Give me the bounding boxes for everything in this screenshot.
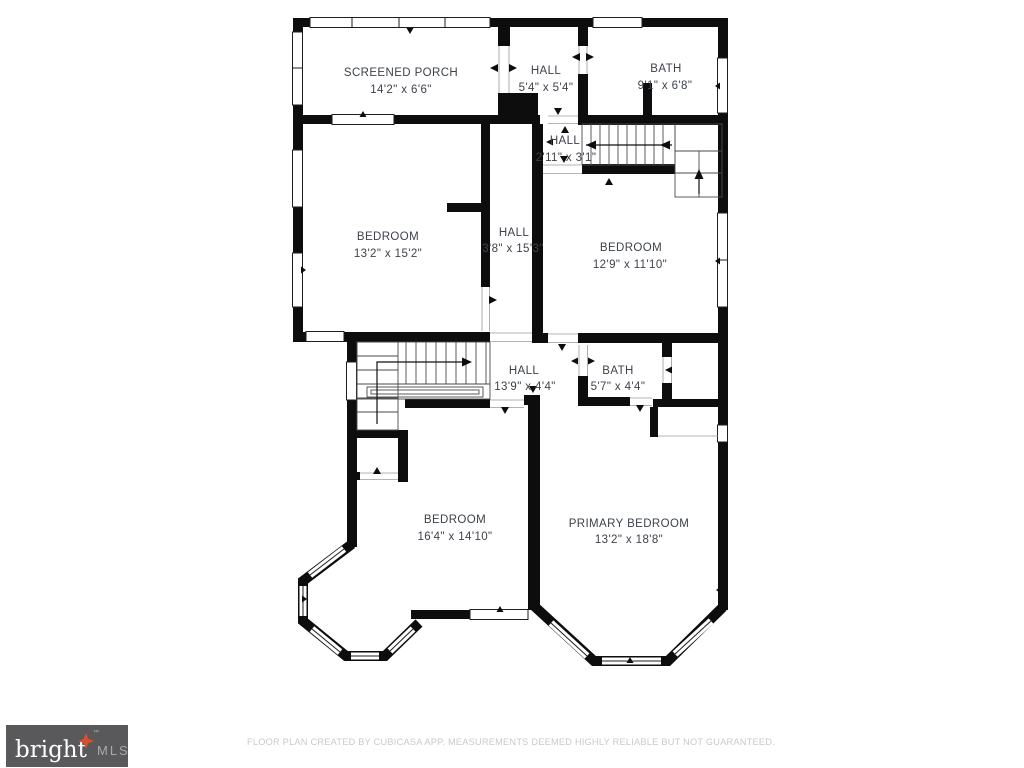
- room-dims: 2'11" x 3'1": [536, 152, 597, 164]
- room-label-bedroom-right: BEDROOM 12'9" x 11'10": [593, 242, 667, 271]
- room-name: BATH: [650, 63, 681, 75]
- room-dims: 16'4" x 14'10": [417, 531, 492, 543]
- bay-windows: [303, 544, 723, 661]
- room-dims: 13'9" x 4'4": [494, 381, 555, 393]
- room-label-bath-top: BATH 9'1" x 6'8": [638, 63, 693, 92]
- bay-window-glass-right: [551, 621, 711, 661]
- staircase-lower: [357, 342, 490, 430]
- room-label-hall-lower: HALL 13'9" x 4'4": [494, 365, 555, 393]
- room-name: HALL: [509, 365, 540, 377]
- logo-trademark: ™: [93, 729, 99, 736]
- room-dims: 13'2" x 15'2": [354, 248, 422, 260]
- room-label-primary-bedroom: PRIMARY BEDROOM 13'2" x 18'8": [569, 518, 690, 546]
- room-labels: SCREENED PORCH 14'2" x 6'6" HALL 5'4" x …: [344, 63, 692, 546]
- room-dims: 13'2" x 18'8": [595, 534, 663, 546]
- logo-brand-text: bright: [15, 737, 88, 763]
- room-dims: 9'1" x 6'8": [638, 80, 693, 92]
- logo-mls-text: MLS: [97, 743, 130, 758]
- staircase-upper: [582, 124, 722, 197]
- floor-plan-svg: SCREENED PORCH 14'2" x 6'6" HALL 5'4" x …: [0, 0, 1024, 768]
- room-label-screened-porch: SCREENED PORCH 14'2" x 6'6": [344, 67, 458, 96]
- disclaimer-text: FLOOR PLAN CREATED BY CUBICASA APP. MEAS…: [247, 737, 775, 747]
- room-name: PRIMARY BEDROOM: [569, 518, 690, 530]
- room-name: SCREENED PORCH: [344, 67, 458, 79]
- room-name: BEDROOM: [424, 514, 486, 526]
- room-name: HALL: [531, 65, 562, 77]
- floor-plan-page: SCREENED PORCH 14'2" x 6'6" HALL 5'4" x …: [0, 0, 1024, 768]
- room-label-bath-lower: BATH 5'7" x 4'4": [591, 365, 646, 393]
- room-label-bedroom-bottom: BEDROOM 16'4" x 14'10": [417, 514, 492, 543]
- room-name: BEDROOM: [600, 242, 662, 254]
- room-label-bedroom-left: BEDROOM 13'2" x 15'2": [354, 231, 422, 260]
- room-dims: 3'8" x 15'3": [482, 243, 543, 255]
- room-label-hall-top: HALL 5'4" x 5'4": [519, 65, 574, 94]
- room-dims: 5'4" x 5'4": [519, 82, 574, 94]
- room-name: BATH: [602, 365, 633, 377]
- room-dims: 14'2" x 6'6": [370, 84, 431, 96]
- room-name: HALL: [550, 135, 581, 147]
- brightmls-logo: bright ™ MLS: [6, 725, 130, 767]
- room-name: HALL: [499, 227, 530, 239]
- room-label-hall-small: HALL 2'11" x 3'1": [536, 135, 597, 164]
- room-name: BEDROOM: [357, 231, 419, 243]
- room-dims: 12'9" x 11'10": [593, 259, 667, 271]
- room-dims: 5'7" x 4'4": [591, 381, 646, 393]
